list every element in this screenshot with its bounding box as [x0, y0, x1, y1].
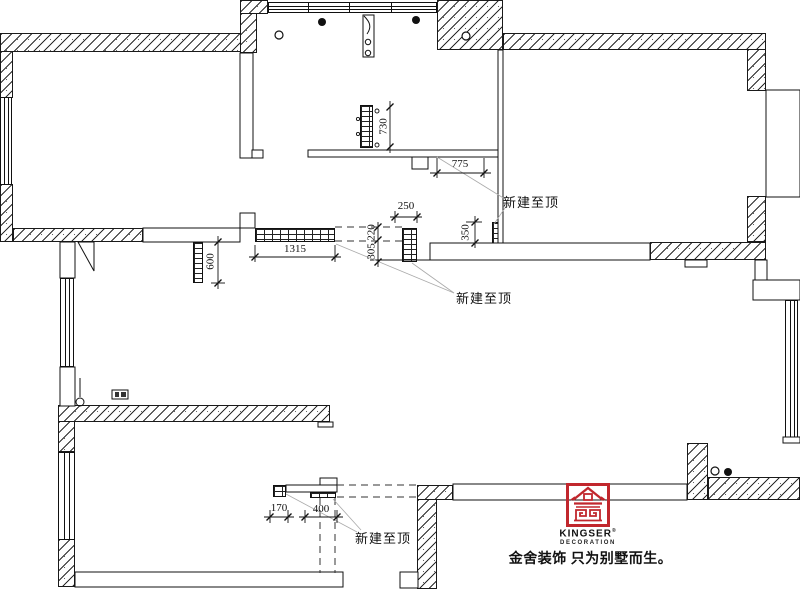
new-wall-label-3: 新建至顶	[355, 528, 411, 547]
shaft-symbol	[363, 15, 374, 57]
leader-lines	[286, 157, 507, 532]
floor-plan: 新建至顶 新建至顶 新建至顶 775 730 250 350 220 305 1…	[0, 0, 800, 589]
dim-305: 305	[367, 234, 378, 270]
dim-350: 350	[461, 215, 472, 251]
registered-mark: ®	[612, 528, 617, 534]
kingser-subtitle: DECORATION	[553, 540, 623, 546]
kingser-logo-seal	[566, 483, 610, 527]
plan-linework	[0, 0, 800, 589]
dashed-lines	[320, 227, 417, 573]
dim-400: 400	[301, 504, 341, 515]
dim-170: 170	[259, 503, 299, 514]
door-symbol	[78, 242, 94, 271]
fixture-symbol	[76, 378, 84, 406]
meter-box	[112, 390, 128, 399]
thin-walls	[60, 50, 800, 588]
dim-775: 775	[440, 159, 480, 170]
dim-730: 730	[379, 109, 390, 145]
logo-slogan: 金舍装饰 只为别墅而生。	[493, 548, 688, 568]
dim-1315: 1315	[272, 244, 318, 255]
new-wall-label-2: 新建至顶	[456, 288, 512, 307]
dim-600: 600	[206, 244, 217, 280]
new-wall-label-1: 新建至顶	[503, 192, 559, 211]
dim-250: 250	[386, 201, 426, 212]
kingser-logo	[566, 483, 610, 527]
kingser-brand-text: KINGSER®	[553, 528, 623, 539]
